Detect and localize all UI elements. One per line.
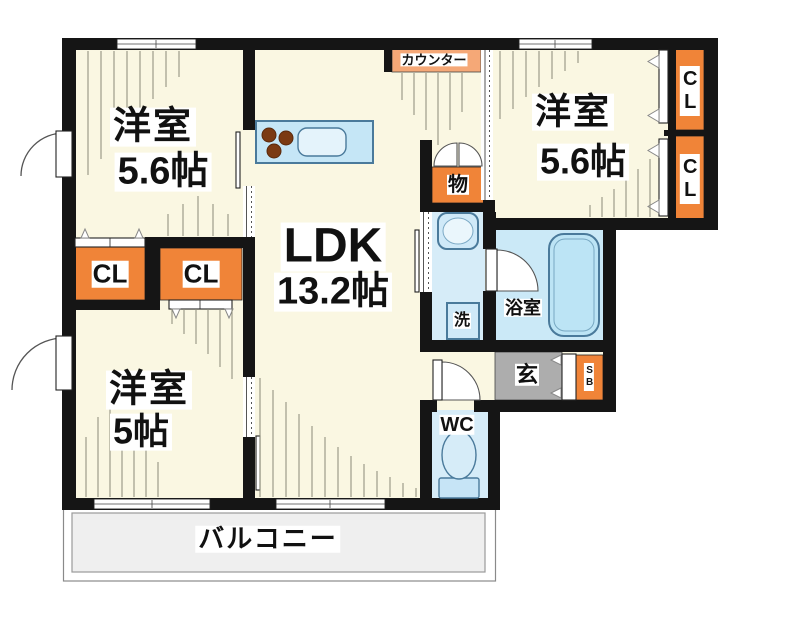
- closet-left-1-label: CL: [92, 261, 129, 288]
- room-tl-size-label: 5.6帖: [115, 153, 212, 192]
- room-bl-name-label: 洋室: [106, 371, 192, 410]
- shoe-box-label: SB: [584, 363, 594, 391]
- bathtub-icon: [549, 234, 599, 336]
- ldk-name-label: LDK: [281, 223, 386, 272]
- kitchen-sink-icon: [298, 128, 346, 156]
- storage-label: 物: [447, 175, 469, 195]
- entrance-label: 玄: [515, 364, 539, 386]
- room-tl-name-label: 洋室: [110, 108, 196, 147]
- toilet-icon: [439, 431, 479, 498]
- ldk-size-label: 13.2帖: [274, 273, 392, 312]
- washbasin-icon: [438, 213, 478, 249]
- room-tr-name-label: 洋室: [532, 94, 614, 131]
- balcony-label: バルコニー: [195, 526, 340, 553]
- kitchen-counter-icon: [256, 121, 373, 163]
- closet-left-2-label: CL: [183, 261, 220, 288]
- floorplan-page: 洋室 5.6帖 洋室 5.6帖 洋室 5帖 LDK 13.2帖 バルコニー カウ…: [0, 0, 800, 628]
- room-bl-size-label: 5帖: [110, 414, 172, 451]
- closet-right-1-label: CL: [680, 66, 700, 116]
- counter-label: カウンター: [400, 53, 467, 66]
- wc-label: WC: [439, 415, 474, 435]
- room-tr-size-label: 5.6帖: [537, 144, 629, 181]
- bath-label: 浴室: [504, 299, 542, 317]
- laundry-label: 洗: [453, 313, 471, 329]
- closet-right-2-label: CL: [680, 154, 700, 204]
